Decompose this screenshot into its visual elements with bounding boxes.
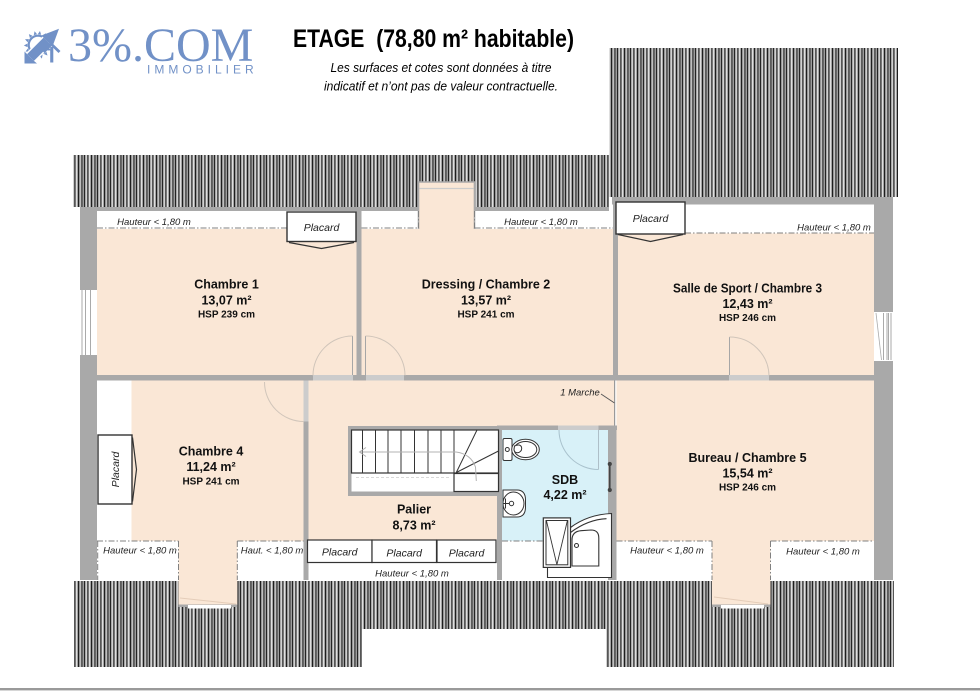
svg-text:Hauteur < 1,80 m: Hauteur < 1,80 m: [797, 223, 871, 234]
svg-text:11,24 m²: 11,24 m²: [186, 460, 235, 474]
svg-text:13,07 m²: 13,07 m²: [201, 294, 251, 308]
svg-text:HSP 241 cm: HSP 241 cm: [457, 310, 514, 321]
svg-text:Les surfaces et cotes sont don: Les surfaces et cotes sont données à tit…: [331, 60, 552, 75]
svg-text:Hauteur < 1,80 m: Hauteur < 1,80 m: [117, 217, 191, 228]
svg-text:Chambre 4: Chambre 4: [179, 445, 244, 459]
svg-text:8,73 m²: 8,73 m²: [392, 519, 435, 533]
svg-text:4,22 m²: 4,22 m²: [543, 488, 586, 502]
svg-text:Dressing / Chambre 2: Dressing / Chambre 2: [422, 278, 551, 292]
svg-text:HSP 241 cm: HSP 241 cm: [182, 477, 239, 488]
svg-text:Hauteur < 1,80 m: Hauteur < 1,80 m: [504, 217, 578, 228]
svg-text:13,57 m²: 13,57 m²: [461, 294, 511, 308]
svg-text:Placard: Placard: [449, 548, 486, 560]
svg-text:Hauteur < 1,80 m: Hauteur < 1,80 m: [103, 546, 177, 557]
svg-text:HSP 246 cm: HSP 246 cm: [719, 313, 776, 324]
svg-text:Placard: Placard: [322, 547, 359, 559]
svg-text:Hauteur < 1,80 m: Hauteur < 1,80 m: [630, 546, 704, 557]
svg-text:indicatif et n’ont pas de vale: indicatif et n’ont pas de valeur contrac…: [324, 79, 558, 94]
svg-text:Hauteur < 1,80 m: Hauteur < 1,80 m: [375, 569, 449, 580]
svg-text:1 Marche: 1 Marche: [560, 388, 600, 399]
svg-text:ETAGE (78,80 m² habitable): ETAGE (78,80 m² habitable): [293, 25, 574, 53]
svg-text:Hauteur < 1,80 m: Hauteur < 1,80 m: [786, 547, 860, 558]
svg-text:Salle de Sport / Chambre 3: Salle de Sport / Chambre 3: [673, 282, 822, 296]
svg-text:Chambre 1: Chambre 1: [194, 278, 259, 292]
svg-text:HSP 246 cm: HSP 246 cm: [719, 483, 776, 494]
svg-text:Bureau / Chambre 5: Bureau / Chambre 5: [688, 451, 806, 465]
svg-text:HSP 239 cm: HSP 239 cm: [198, 310, 255, 321]
svg-text:Haut. < 1,80 m: Haut. < 1,80 m: [241, 546, 304, 557]
svg-text:15,54 m²: 15,54 m²: [722, 467, 772, 481]
svg-text:Palier: Palier: [397, 503, 431, 517]
svg-text:Placard: Placard: [110, 451, 122, 488]
svg-text:Placard: Placard: [304, 222, 341, 234]
svg-text:12,43 m²: 12,43 m²: [722, 297, 772, 311]
svg-text:SDB: SDB: [552, 473, 578, 487]
svg-text:IMMOBILIER: IMMOBILIER: [147, 63, 258, 77]
svg-text:Placard: Placard: [633, 213, 670, 225]
svg-text:Placard: Placard: [386, 548, 423, 560]
